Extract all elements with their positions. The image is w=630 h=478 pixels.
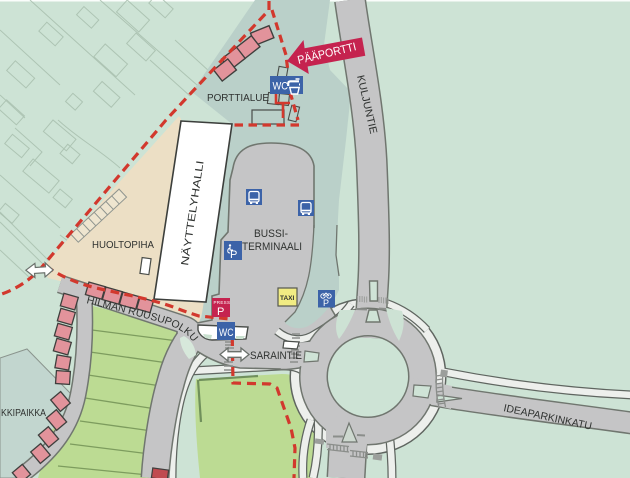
svg-text:PRESS: PRESS bbox=[214, 300, 231, 305]
svg-text:P: P bbox=[230, 249, 237, 261]
svg-text:HUOLTOPIHA: HUOLTOPIHA bbox=[92, 239, 154, 251]
svg-text:WC: WC bbox=[219, 327, 234, 339]
svg-text:BUSSI-: BUSSI- bbox=[254, 228, 288, 240]
svg-text:SARAINTIE: SARAINTIE bbox=[250, 350, 302, 362]
svg-text:P: P bbox=[323, 298, 329, 308]
svg-text:TAXI: TAXI bbox=[280, 295, 295, 302]
svg-text:KKIPAIKKA: KKIPAIKKA bbox=[1, 407, 46, 419]
svg-text:P: P bbox=[217, 306, 224, 318]
svg-text:PORTTIALUE: PORTTIALUE bbox=[207, 92, 269, 104]
svg-text:WC: WC bbox=[273, 81, 289, 93]
svg-text:TERMINAALI: TERMINAALI bbox=[242, 241, 302, 253]
